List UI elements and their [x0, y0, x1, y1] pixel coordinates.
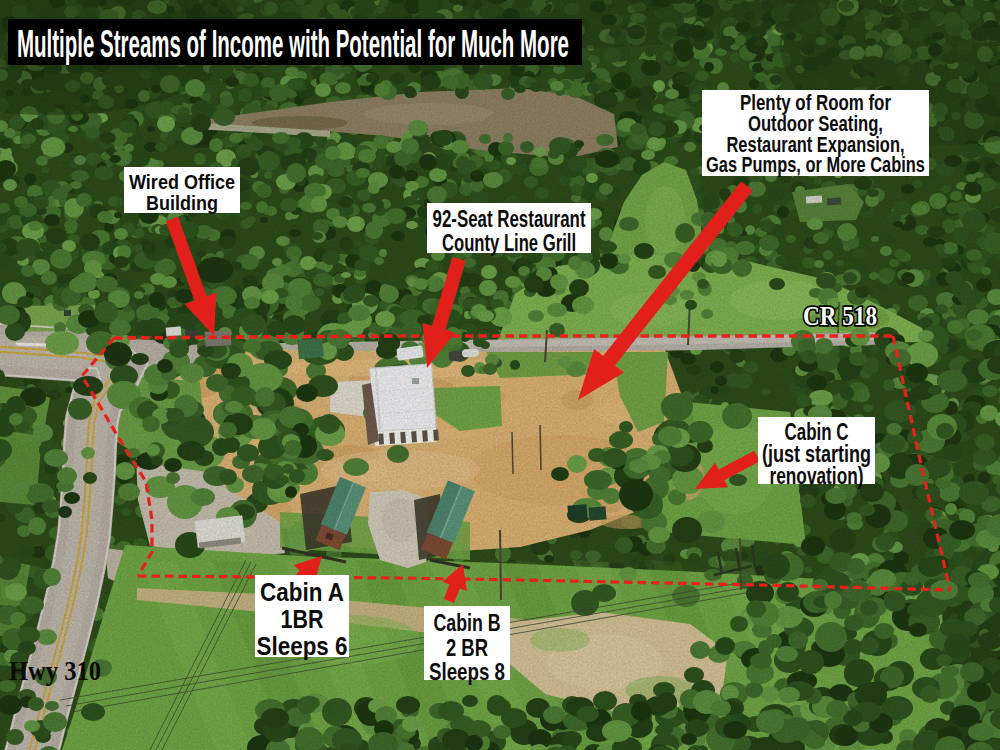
svg-text:Multiple Streams of Income wit: Multiple Streams of Income with Potentia…	[17, 22, 569, 65]
svg-text:County Line Grill: County Line Grill	[442, 230, 576, 256]
svg-text:renovation): renovation)	[770, 463, 864, 489]
svg-text:2 BR: 2 BR	[446, 634, 488, 661]
svg-text:Gas Pumps, or More Cabins: Gas Pumps, or More Cabins	[706, 152, 925, 177]
svg-text:Sleeps 8: Sleeps 8	[429, 658, 505, 685]
svg-text:92-Seat Restaurant: 92-Seat Restaurant	[433, 206, 586, 232]
svg-text:Cabin A: Cabin A	[260, 577, 344, 607]
svg-text:CR 518: CR 518	[803, 301, 877, 331]
svg-text:Sleeps 6: Sleeps 6	[257, 631, 348, 661]
svg-text:Building: Building	[146, 191, 218, 214]
svg-text:Cabin B: Cabin B	[434, 609, 501, 636]
svg-text:Wired Office: Wired Office	[129, 170, 235, 193]
svg-text:Hwy 310: Hwy 310	[9, 655, 101, 686]
svg-text:1BR: 1BR	[281, 604, 324, 634]
